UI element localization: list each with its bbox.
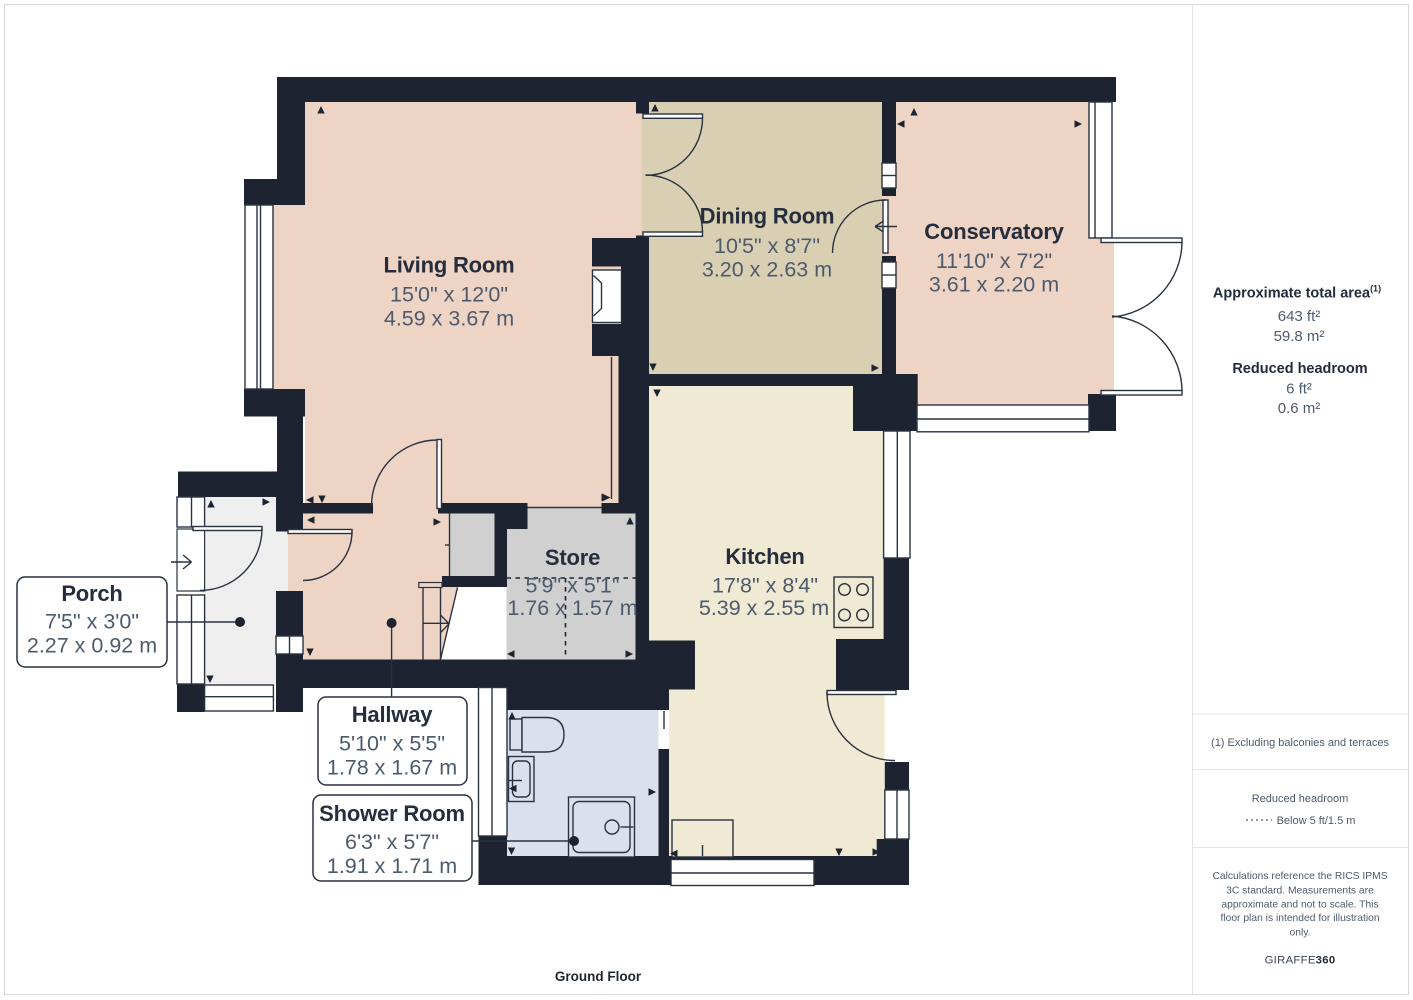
svg-text:643 ft²: 643 ft² (1278, 308, 1321, 325)
svg-text:5'10" x 5'5": 5'10" x 5'5" (339, 732, 445, 756)
svg-text:Kitchen: Kitchen (725, 544, 804, 569)
svg-text:1.78 x 1.67 m: 1.78 x 1.67 m (327, 756, 457, 780)
svg-text:Living Room: Living Room (383, 253, 514, 278)
svg-text:only.: only. (1290, 928, 1311, 939)
svg-text:3C standard. Measurements are: 3C standard. Measurements are (1226, 886, 1374, 897)
svg-text:(1) Excluding balconies and te: (1) Excluding balconies and terraces (1211, 737, 1389, 749)
svg-text:Calculations reference the RIC: Calculations reference the RICS IPMS (1212, 871, 1387, 882)
svg-text:3.20 x 2.63 m: 3.20 x 2.63 m (702, 258, 832, 282)
svg-text:GIRAFFE360: GIRAFFE360 (1265, 955, 1336, 967)
svg-text:17'8" x 8'4": 17'8" x 8'4" (712, 574, 818, 598)
svg-text:11'10" x 7'2": 11'10" x 7'2" (936, 249, 1052, 273)
svg-text:Below 5 ft/1.5 m: Below 5 ft/1.5 m (1277, 815, 1356, 827)
svg-text:4.59 x 3.67 m: 4.59 x 3.67 m (384, 307, 514, 331)
svg-text:10'5" x 8'7": 10'5" x 8'7" (714, 234, 820, 258)
svg-text:6'3" x 5'7": 6'3" x 5'7" (345, 830, 439, 854)
svg-text:Ground Floor: Ground Floor (555, 969, 642, 984)
svg-text:floor plan is intended for ill: floor plan is intended for illustration (1220, 913, 1379, 924)
svg-text:Approximate total area(1): Approximate total area(1) (1213, 284, 1381, 302)
svg-text:Conservatory: Conservatory (924, 219, 1064, 244)
svg-text:6 ft²: 6 ft² (1286, 381, 1312, 398)
svg-text:1.76 x 1.57 m: 1.76 x 1.57 m (507, 596, 637, 620)
svg-text:2.27 x 0.92 m: 2.27 x 0.92 m (27, 634, 157, 658)
svg-text:0.6 m²: 0.6 m² (1278, 400, 1321, 417)
svg-text:Reduced headroom: Reduced headroom (1252, 793, 1349, 805)
svg-text:Dining Room: Dining Room (700, 204, 835, 229)
svg-text:approximate and not to scale.: approximate and not to scale. This (1221, 900, 1378, 911)
svg-text:5.39 x 2.55 m: 5.39 x 2.55 m (699, 596, 829, 620)
svg-text:1.91 x 1.71 m: 1.91 x 1.71 m (327, 854, 457, 878)
svg-text:Shower Room: Shower Room (319, 801, 465, 826)
svg-text:59.8 m²: 59.8 m² (1274, 328, 1325, 345)
svg-text:3.61 x 2.20 m: 3.61 x 2.20 m (929, 273, 1059, 297)
svg-text:Porch: Porch (61, 581, 122, 606)
svg-text:Reduced headroom: Reduced headroom (1232, 361, 1367, 377)
svg-text:7'5" x 3'0": 7'5" x 3'0" (45, 610, 139, 634)
svg-text:5'9" x 5'1": 5'9" x 5'1" (526, 574, 620, 598)
svg-text:Hallway: Hallway (352, 702, 433, 727)
svg-text:15'0" x 12'0": 15'0" x 12'0" (390, 283, 508, 307)
svg-text:Store: Store (545, 545, 600, 570)
